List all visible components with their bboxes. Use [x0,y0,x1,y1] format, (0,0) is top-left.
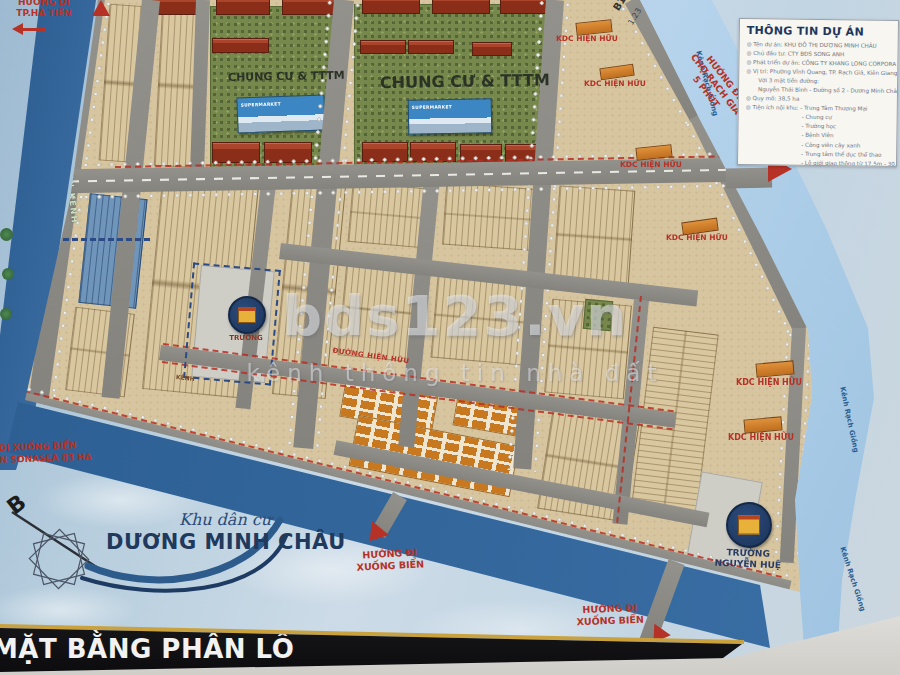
direction-line: HƯỚNG ĐI [8,0,80,8]
school-building-glyph [738,516,760,535]
arrow-up-icon [92,0,110,16]
direction-sea-right: HƯỚNG ĐI XUỐNG BIỂN [556,601,665,629]
info-box-title: THÔNG TIN DỰ ÁN [747,24,898,39]
supermarket-building: SUPERMARKET [408,98,493,134]
school-nguyen-hue-label: TRƯỜNG NGUYỄN HUỆ [700,546,797,572]
chung-cu-label: CHUNG CƯ & TTTM [380,71,520,92]
project-info-box: THÔNG TIN DỰ ÁN ◎ Tên dự án: KHU ĐÔ THỊ … [737,18,899,167]
rowhouse-roof [360,40,406,54]
palm-tree-icon [2,268,14,280]
direction-ha-tien: HƯỚNG ĐI TP.HÀ TIÊN [8,0,80,20]
supermarket-building: SUPERMARKET [236,94,325,133]
logo-script: Khu dân cư [170,510,280,529]
lot-block [553,185,636,288]
supermarket-label: SUPERMARKET [412,104,452,110]
palm-tree-icon [0,308,12,320]
bridge [726,168,772,189]
plan-title: MẶT BẰNG PHÂN LÔ [0,634,294,664]
kdc-label: KDC HIỆN HỮU [666,233,728,242]
supermarket-label: SUPERMARKET [241,101,281,107]
direction-sea-left: ĐƯỜNG ĐI XUỐNG BIỂN VÀ DỰ ÁN SONASEA 83 … [0,439,92,468]
kdc-label: KDC HIỆN HỮU [556,34,618,43]
school-icon [726,502,772,548]
rowhouse-roof [212,38,269,53]
rowhouse-roof [216,0,270,15]
arrow-stem [22,28,46,31]
watermark-tagline: kênh thông tin nhà đất [225,360,685,386]
direction-line: TP.HÀ TIÊN [8,8,80,19]
rowhouse-roof [472,42,512,56]
rowhouse-roof [362,0,420,14]
chung-cu-label: CHUNG CƯ & TTTM [228,69,333,84]
palm-tree-icon [0,228,13,241]
watermark: bds123.vn kênh thông tin nhà đất [225,283,685,386]
project-logo: Khu dân cư DƯƠNG MINH CHÂU [78,492,293,614]
kdc-label: KDC HIỆN HỮU [620,160,682,169]
logo-name: DƯƠNG MINH CHÂU [106,530,296,554]
watermark-brand: bds123.vn [225,283,685,348]
master-plan-poster-photo: SUPERMARKET SUPERMARKET [0,0,900,675]
kdc-label: KDC HIỆN HỮU [728,433,794,443]
kdc-building [599,64,634,81]
kdc-label: KDC HIỆN HỮU [584,79,646,88]
rowhouse-roof [432,0,490,14]
kdc-label: KDC HIỆN HỮU [736,378,802,388]
rowhouse-roof [408,40,454,54]
kdc-building [743,416,782,433]
